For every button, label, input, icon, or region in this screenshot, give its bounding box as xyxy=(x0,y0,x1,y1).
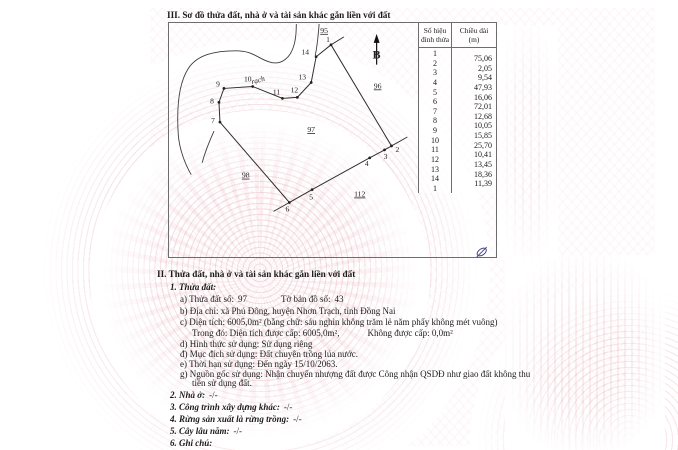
vertex-label-2: 2 xyxy=(396,145,400,154)
vertex-number-cell: 11 xyxy=(419,145,451,155)
parcel-98-label: 98 xyxy=(242,171,250,180)
line-address: b) Địa chỉ: xã Phú Đông, huyện Nhơn Trạc… xyxy=(180,306,396,316)
parcel-95-label: 95 xyxy=(320,26,328,35)
vertex-number-cell: 1 xyxy=(419,49,451,59)
vertex-number-cell: 2 xyxy=(419,59,451,69)
vertex-dots xyxy=(218,43,393,203)
vertex-number-cell: 12 xyxy=(419,155,451,165)
vertex-label-4: 4 xyxy=(365,159,369,168)
area-granted: Trong đó: Diện tích được cấp: 6005,0m², xyxy=(192,328,340,338)
line-use-term: e) Thời hạn sử dụng: Đến ngày 15/10/2063… xyxy=(180,359,337,369)
vertex-number-cell: 3 xyxy=(419,68,451,78)
section3-title: III. Sơ đồ thửa đất, nhà ở và tài sản kh… xyxy=(167,10,390,20)
vertex-number-cell: 6 xyxy=(419,97,451,107)
line-use-purpose: đ) Mục đích sử dụng: Đất chuyên trồng lú… xyxy=(180,349,358,359)
vertex-labels: 1 2 3 4 5 6 7 8 9 10 11 12 13 14 xyxy=(210,35,399,214)
area-not-granted: Không được cấp: 0,0m² xyxy=(368,328,453,338)
length-cell: 10,05 xyxy=(452,121,492,131)
vertex-number-cell: 14 xyxy=(419,174,451,184)
length-cell: 72,01 xyxy=(452,102,492,112)
vertex-number-cell: 1 xyxy=(419,184,451,194)
item3-construction: 3. Công trình xây dựng khác:-/- xyxy=(170,402,292,412)
line-area: c) Diện tích: 6005,0m² (bằng chữ: sáu ng… xyxy=(180,317,498,327)
length-cell: 9,54 xyxy=(452,73,492,83)
corner-paraph-mark xyxy=(476,247,488,258)
vertex-number-cell: 13 xyxy=(419,165,451,175)
vertex-label-6: 6 xyxy=(286,204,290,213)
boundary-extension-top xyxy=(331,37,344,45)
header-length: Chiều dài (m) xyxy=(452,23,496,47)
item1-title: 1. Thửa đất: xyxy=(170,282,216,292)
line-use-form: d) Hình thức sử dụng: Sử dụng riêng xyxy=(180,339,312,349)
vertex-label-9: 9 xyxy=(216,79,220,88)
stream-right-bank xyxy=(315,24,319,56)
vertex-number-cell: 5 xyxy=(419,88,451,98)
length-cell: 11,39 xyxy=(452,179,492,189)
header-vertex-number: Số hiệu đỉnh thửa xyxy=(419,23,452,47)
length-cell: 18,36 xyxy=(452,170,492,180)
vertex-label-7: 7 xyxy=(211,116,215,125)
length-cell: 12,68 xyxy=(452,112,492,122)
parcel-map-box: 1 2 3 4 5 6 7 8 9 10 11 12 13 14 95 96 9… xyxy=(168,22,497,258)
guilloche-band-upper-right xyxy=(498,25,558,260)
certificate-page: III. Sơ đồ thửa đất, nhà ở và tài sản kh… xyxy=(0,0,678,450)
vertex-label-1: 1 xyxy=(326,35,330,44)
length-cell: 2,05 xyxy=(452,64,492,74)
section2-title: II. Thửa đất, nhà ở và tài sản khác gắn … xyxy=(157,269,355,279)
line-parcel-number: a) Thửa đất số:97Tờ bản đồ số:43 xyxy=(180,294,343,304)
guilloche-band-right xyxy=(505,255,665,450)
map-sheet-label: Tờ bản đồ số: xyxy=(281,294,331,304)
vertex-label-8: 8 xyxy=(210,96,214,105)
parcel-112-label: 112 xyxy=(354,190,365,199)
parcel-97-label: 97 xyxy=(307,125,315,134)
north-arrow: B xyxy=(373,34,381,65)
vertex-label-3: 3 xyxy=(384,152,388,161)
length-column: 75,062,059,5447,9316,0672,0112,6810,0515… xyxy=(452,48,496,193)
vertex-number-column: 12345678910111213141 xyxy=(419,48,452,193)
vertex-label-12: 12 xyxy=(291,85,299,94)
map-sheet-value: 43 xyxy=(334,294,343,304)
vertex-length-table: Số hiệu đỉnh thửa Chiều dài (m) 12345678… xyxy=(418,23,496,193)
table-body: 12345678910111213141 75,062,059,5447,931… xyxy=(419,48,496,193)
north-letter: B xyxy=(373,48,381,62)
length-cell: 75,06 xyxy=(452,54,492,64)
length-cell: 25,70 xyxy=(452,141,492,151)
vertex-number-cell: 7 xyxy=(419,107,451,117)
vertex-label-13: 13 xyxy=(299,73,307,82)
item6-notes: 6. Ghi chú: xyxy=(170,438,212,448)
parcel-96-label: 96 xyxy=(374,81,382,90)
length-cell: 16,06 xyxy=(452,93,492,103)
length-cell: 47,93 xyxy=(452,83,492,93)
table-header: Số hiệu đỉnh thửa Chiều dài (m) xyxy=(419,23,496,48)
parcel-number-value: 97 xyxy=(238,294,247,304)
length-cell: 15,85 xyxy=(452,131,492,141)
stream-name-label: rạch xyxy=(250,74,266,86)
vertex-number-cell: 8 xyxy=(419,116,451,126)
item2-house: 2. Nhà ở:-/- xyxy=(170,390,218,400)
boundary-extension-right xyxy=(391,137,407,146)
parcel-number-label: a) Thửa đất số: xyxy=(180,294,234,304)
parcel-number-labels: 95 96 97 98 112 xyxy=(242,26,382,199)
vertex-number-cell: 9 xyxy=(419,126,451,136)
length-cell: 10,41 xyxy=(452,150,492,160)
stream-left-bank xyxy=(178,24,297,175)
line-origin-2: tiền sử dụng đất. xyxy=(192,378,252,388)
vertex-number-cell: 4 xyxy=(419,78,451,88)
length-cell: 13,45 xyxy=(452,160,492,170)
stream-lower-squiggle xyxy=(202,131,214,163)
vertex-label-11: 11 xyxy=(273,87,280,96)
item5-perennial: 5. Cây lâu năm:-/- xyxy=(170,426,242,436)
vertex-number-cell: 10 xyxy=(419,136,451,146)
vertex-label-5: 5 xyxy=(309,192,313,201)
line-area-detail: Trong đó: Diện tích được cấp: 6005,0m²,K… xyxy=(192,328,453,338)
vertex-label-14: 14 xyxy=(301,48,309,57)
guilloche-rings-bottom-right xyxy=(470,280,678,450)
item4-forest: 4. Rừng sản xuất là rừng trồng:-/- xyxy=(170,414,302,424)
